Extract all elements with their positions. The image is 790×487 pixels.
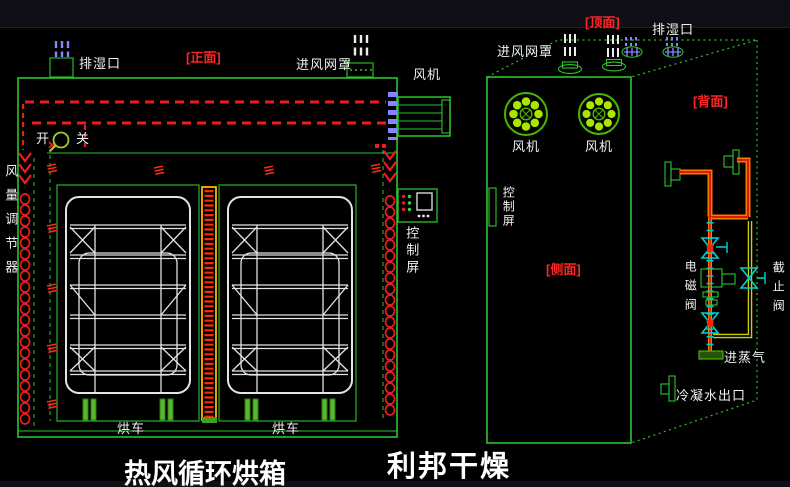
fv-air-regulator-label: 风量调节器 xyxy=(3,164,17,284)
exhaust-port-stub xyxy=(50,41,73,77)
fv-exhaust-port-label: 排湿口 xyxy=(79,57,121,71)
trolley-drawing-2 xyxy=(228,197,352,420)
exhaust-vent-ovals xyxy=(622,37,683,57)
fv-inlet-mesh-label: 进风网罩 xyxy=(296,58,352,72)
pv-exhaust-port-label: 排湿口 xyxy=(652,23,694,37)
fan-wheel-icon-2 xyxy=(579,94,619,134)
fv-control-panel-label: 控制屏 xyxy=(404,226,418,277)
pv-steam-inlet-label: 进蒸气 xyxy=(724,351,766,365)
solenoid-valve-icon xyxy=(701,238,735,333)
pv-side-view-label: [侧面] xyxy=(546,263,581,277)
diagram-graphics xyxy=(0,0,790,487)
fv-fan-label: 风机 xyxy=(413,68,441,82)
fan-motor-drawing xyxy=(393,92,450,140)
front-view-drawing xyxy=(18,35,450,437)
pv-fan-label-2: 风机 xyxy=(585,140,613,154)
pv-stop-valve-label: 截止阀 xyxy=(771,261,784,318)
cad-drawing-canvas: 排湿口 [正面] 进风网罩 风机 开 关 风量调节器 控制屏 烘车 烘车 [顶面… xyxy=(0,0,790,487)
condensate-fitting xyxy=(661,376,675,401)
heater-column-right xyxy=(375,144,396,420)
pv-solenoid-valve-label: 电磁阀 xyxy=(683,260,696,317)
control-panel-box xyxy=(398,189,437,222)
fv-view-label: [正面] xyxy=(186,51,221,65)
fv-switch-on-label: 开 xyxy=(36,132,50,146)
steam-inlet-flange xyxy=(699,351,723,359)
pv-top-view-label: [顶面] xyxy=(585,16,620,30)
pipe-flange-left xyxy=(665,162,671,186)
pv-control-panel-label: 控制屏 xyxy=(501,186,514,228)
fv-trolley-label-1: 烘车 xyxy=(117,422,145,436)
pv-inlet-mesh-label: 进风网罩 xyxy=(497,45,553,59)
switch-indicator-icon xyxy=(50,133,69,152)
trolley-wheels xyxy=(83,399,173,420)
control-screen-strip xyxy=(489,188,496,226)
pv-back-view-label: [背面] xyxy=(693,95,728,109)
brand-title: 利邦干燥 xyxy=(387,443,511,485)
product-title: 热风循环烘箱 xyxy=(124,452,286,487)
heater-column-left xyxy=(19,153,50,430)
fv-trolley-label-2: 烘车 xyxy=(272,422,300,436)
trolley-wheels xyxy=(245,399,335,420)
pv-fan-label-1: 风机 xyxy=(512,140,540,154)
fv-switch-off-label: 关 xyxy=(76,132,90,146)
fan-wheel-icon-1 xyxy=(505,93,547,135)
pv-condensate-outlet-label: 冷凝水出口 xyxy=(676,389,746,403)
heater-divider xyxy=(202,187,217,423)
stop-valve-icon xyxy=(741,268,765,288)
trolley-drawing-1 xyxy=(66,197,190,420)
